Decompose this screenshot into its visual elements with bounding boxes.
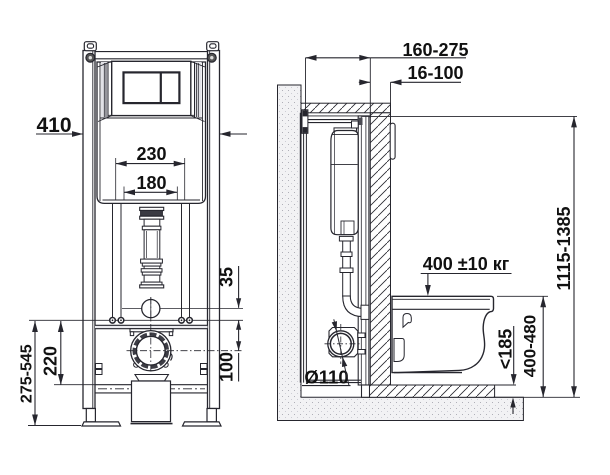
svg-text:1115-1385: 1115-1385 <box>554 206 574 290</box>
svg-text:400 ±10 кг: 400 ±10 кг <box>423 254 510 274</box>
svg-text:<185: <185 <box>496 329 516 370</box>
svg-text:35: 35 <box>217 267 237 287</box>
svg-text:180: 180 <box>136 173 166 193</box>
svg-text:400-480: 400-480 <box>521 315 540 377</box>
svg-text:16-100: 16-100 <box>407 63 463 83</box>
svg-text:275-545: 275-545 <box>18 344 35 403</box>
svg-text:160-275: 160-275 <box>402 40 468 60</box>
svg-text:100: 100 <box>217 352 237 382</box>
svg-text:220: 220 <box>41 346 61 376</box>
svg-text:Ø110: Ø110 <box>304 367 348 388</box>
svg-text:230: 230 <box>136 144 166 164</box>
